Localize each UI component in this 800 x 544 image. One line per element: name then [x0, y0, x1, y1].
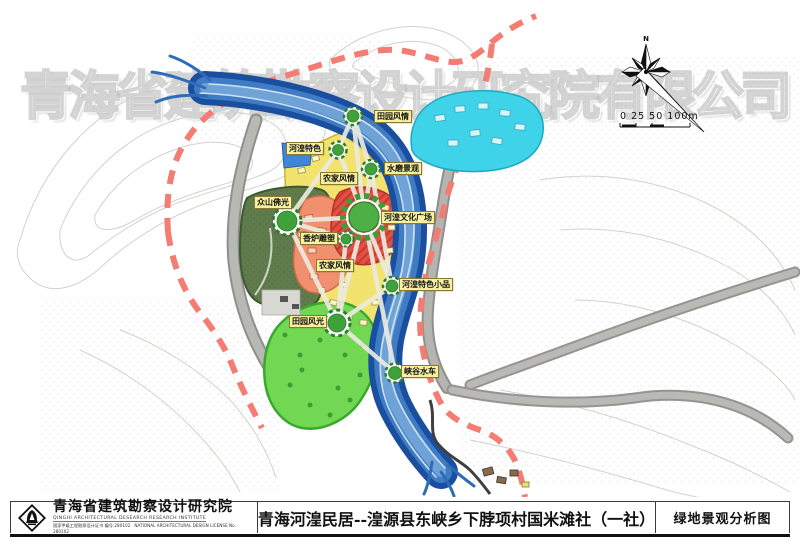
map-label-hehuang-tese: 河湟特色: [286, 142, 324, 155]
node-shuimo-jingguan: [362, 160, 380, 178]
map-label-hehuang-tese-xiaopin: 河湟特色小品: [399, 278, 453, 291]
node-xianglu-diaosu: [339, 232, 354, 247]
license-text-cn: 国家甲级工程勘察设计证书 编号:280102: [53, 523, 130, 528]
scale-bar-label: 0 25 50 100m: [620, 111, 699, 122]
map-label-nongjia-fengqing-lower: 农家风情: [316, 259, 354, 272]
map-label-nongjia-fengqing-upper: 农家风情: [320, 172, 358, 185]
map-label-tianyuan-fengqing: 田园风情: [374, 110, 412, 123]
node-tianyuan-fengguang: [324, 310, 350, 336]
landscape-analysis-map: N 0 25 50 100m: [0, 0, 800, 497]
institute-name-cn: 青海省建筑勘察设计研究院: [53, 500, 253, 515]
title-block: 青海省建筑勘察设计研究院 QINGHI ARCHITECTURAL DESEAR…: [0, 497, 800, 544]
map-label-shuimo-jingguan: 水磨景观: [384, 162, 422, 175]
title-block-bottom-rule: [10, 534, 790, 537]
title-block-project-section: 青海河湟民居--湟源县东峡乡下脖项村国米滩社（一社）: [258, 502, 655, 533]
title-block-institute-section: 青海省建筑勘察设计研究院 QINGHI ARCHITECTURAL DESEAR…: [11, 502, 258, 533]
drawing-title: 绿地景观分析图: [674, 508, 772, 527]
title-block-drawing-section: 绿地景观分析图: [655, 502, 789, 533]
project-title: 青海河湟民居--湟源县东峡乡下脖项村国米滩社（一社）: [258, 506, 655, 530]
compass-north-label: N: [643, 35, 649, 43]
map-label-tianyuan-fengguang: 田园风光: [289, 315, 327, 328]
map-label-zhongshan-foguang: 众山佛光: [254, 196, 292, 209]
institute-name-en: QINGHI ARCHITECTURAL DESEARCH RESEARCH I…: [53, 516, 206, 523]
map-label-xianglu-diaosu: 香炉雕塑: [300, 232, 338, 245]
map-label-hehuang-wenhua-guangchang: 河湟文化广场: [381, 211, 435, 224]
node-tianyuan-fengqing: [344, 107, 362, 125]
map-label-xiagu-shuiche: 峡谷水车: [401, 365, 439, 378]
node-hehuang-tese: [330, 142, 347, 159]
node-zhongshan-foguang: [273, 207, 301, 235]
institute-logo-icon: [17, 503, 47, 533]
